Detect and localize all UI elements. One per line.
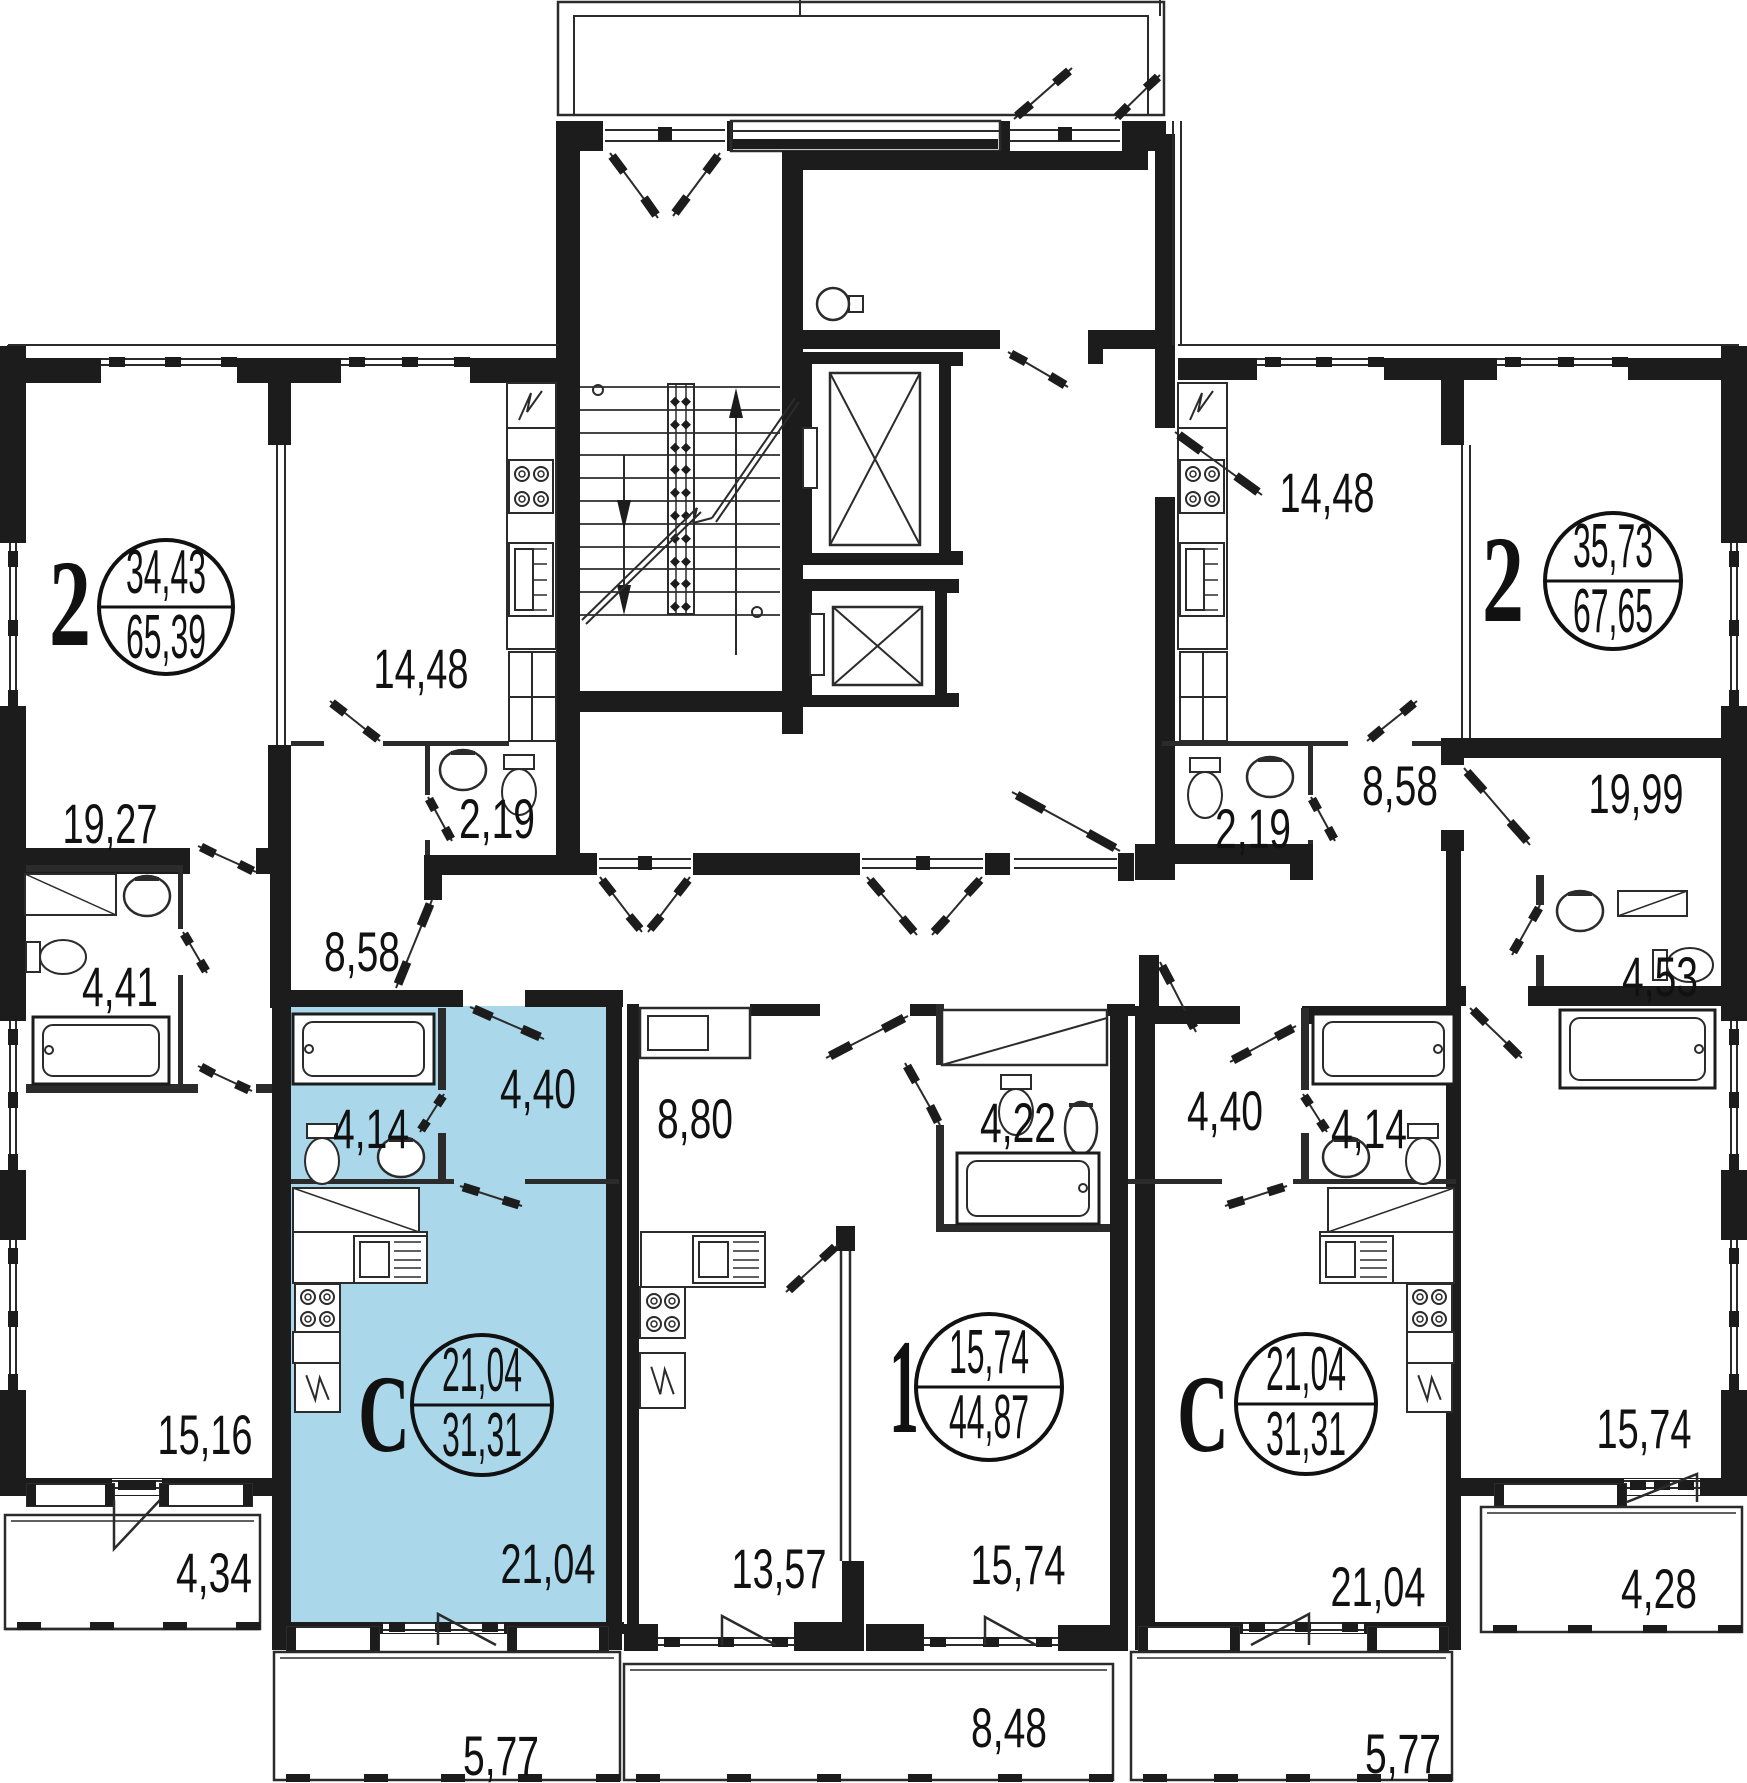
- svg-text:8,80: 8,80: [657, 1087, 733, 1150]
- svg-text:15,74: 15,74: [1597, 1397, 1692, 1460]
- svg-text:4,28: 4,28: [1621, 1557, 1697, 1620]
- svg-text:21,04: 21,04: [442, 1336, 522, 1405]
- svg-text:13,57: 13,57: [732, 1537, 827, 1600]
- svg-text:19,27: 19,27: [63, 792, 158, 855]
- svg-text:14,48: 14,48: [374, 637, 469, 700]
- svg-text:35,73: 35,73: [1573, 512, 1653, 581]
- svg-text:15,74: 15,74: [971, 1533, 1066, 1596]
- svg-text:1: 1: [889, 1313, 919, 1462]
- svg-text:8,58: 8,58: [1362, 754, 1438, 817]
- svg-text:67,65: 67,65: [1573, 577, 1653, 646]
- svg-text:21,04: 21,04: [501, 1532, 596, 1595]
- svg-text:4,40: 4,40: [500, 1057, 576, 1120]
- svg-text:4,53: 4,53: [1622, 945, 1698, 1008]
- svg-text:31,31: 31,31: [1266, 1400, 1346, 1469]
- svg-text:5,77: 5,77: [463, 1724, 539, 1783]
- svg-text:4,40: 4,40: [1187, 1079, 1263, 1142]
- svg-text:21,04: 21,04: [1266, 1335, 1346, 1404]
- svg-text:15,74: 15,74: [949, 1318, 1029, 1387]
- svg-text:65,39: 65,39: [126, 603, 206, 672]
- svg-text:19,99: 19,99: [1589, 762, 1684, 825]
- svg-text:5,77: 5,77: [1365, 1722, 1441, 1783]
- svg-text:4,41: 4,41: [82, 955, 158, 1018]
- svg-text:15,16: 15,16: [158, 1403, 253, 1466]
- svg-text:C: C: [358, 1353, 410, 1475]
- svg-text:2,19: 2,19: [459, 787, 535, 850]
- svg-text:44,87: 44,87: [949, 1383, 1029, 1452]
- svg-text:4,34: 4,34: [176, 1541, 252, 1604]
- svg-text:4,22: 4,22: [980, 1091, 1056, 1154]
- svg-text:2: 2: [49, 535, 91, 672]
- svg-text:34,43: 34,43: [126, 538, 206, 607]
- svg-text:8,58: 8,58: [324, 920, 400, 983]
- svg-text:C: C: [1177, 1353, 1229, 1475]
- svg-text:4,14: 4,14: [333, 1097, 409, 1160]
- svg-text:31,31: 31,31: [442, 1401, 522, 1470]
- svg-text:8,48: 8,48: [971, 1696, 1047, 1759]
- svg-text:4,14: 4,14: [1331, 1097, 1407, 1160]
- svg-text:2: 2: [1482, 511, 1524, 648]
- svg-text:14,48: 14,48: [1280, 461, 1375, 524]
- svg-text:2,19: 2,19: [1215, 797, 1291, 860]
- svg-text:21,04: 21,04: [1331, 1555, 1426, 1618]
